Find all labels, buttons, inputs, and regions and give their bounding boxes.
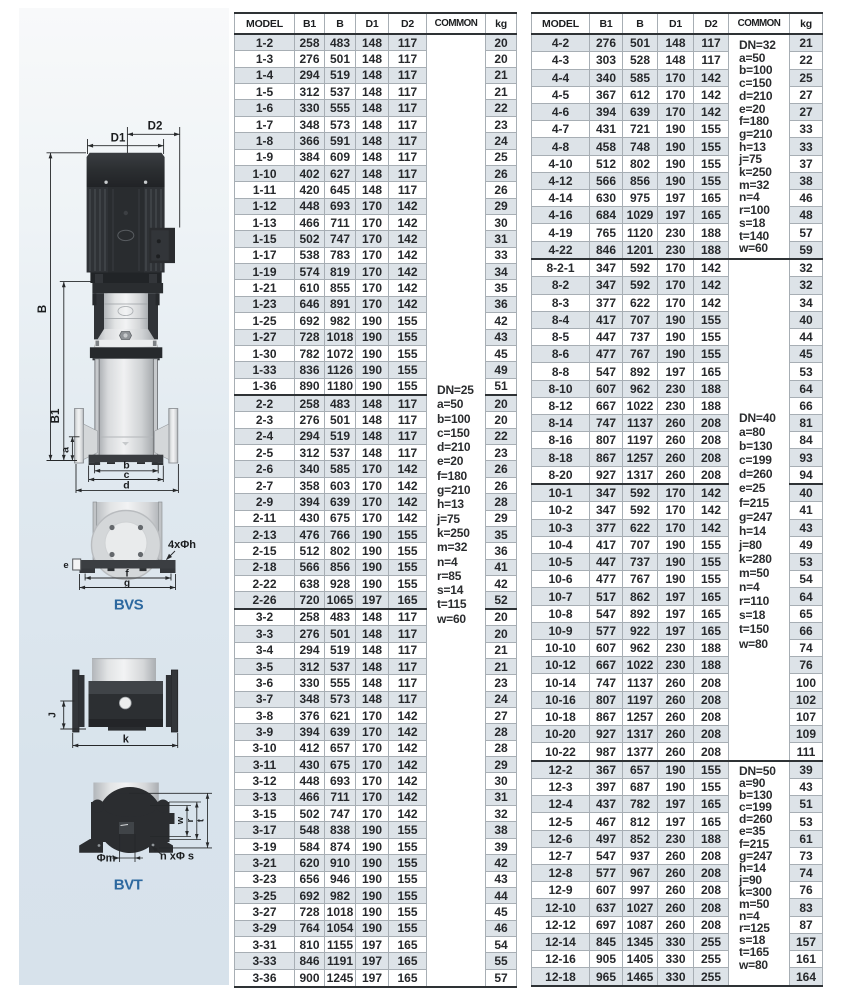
svg-text:a: a (60, 447, 72, 453)
svg-text:r: r (185, 818, 196, 822)
svg-text:J: J (48, 712, 59, 718)
svg-text:e: e (63, 560, 68, 571)
svg-text:Φm: Φm (97, 853, 116, 865)
svg-text:B1: B1 (50, 408, 62, 423)
svg-text:d: d (123, 480, 129, 492)
svg-text:g: g (124, 578, 130, 589)
svg-text:D1: D1 (111, 133, 126, 145)
svg-text:BVS: BVS (114, 597, 144, 614)
svg-text:B: B (37, 305, 49, 313)
svg-text:k: k (123, 734, 130, 746)
svg-text:4xΦh: 4xΦh (168, 539, 196, 551)
svg-text:D2: D2 (148, 121, 163, 133)
svg-text:BVT: BVT (114, 877, 143, 894)
svg-text:n xΦ s: n xΦ s (160, 851, 194, 863)
